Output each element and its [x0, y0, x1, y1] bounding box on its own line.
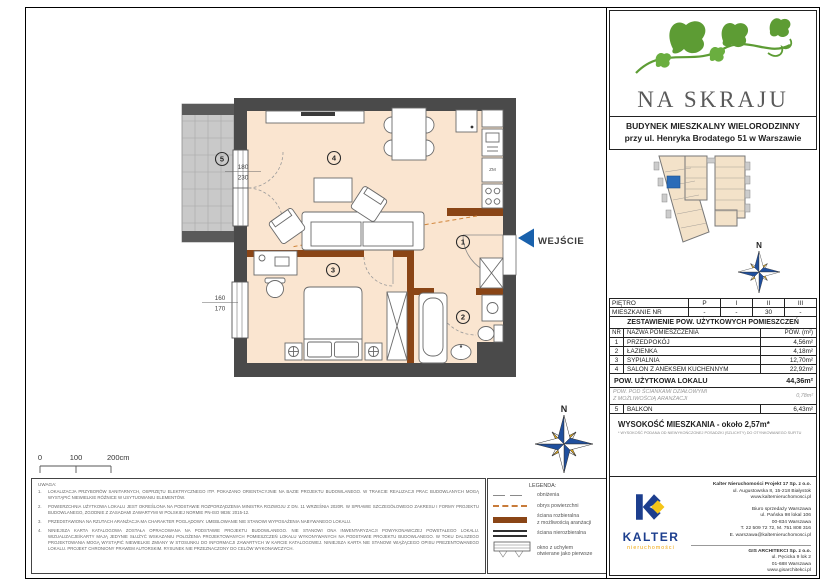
compass-icon: N — [535, 404, 593, 473]
svg-text:200cm: 200cm — [107, 453, 130, 462]
svg-text:0: 0 — [38, 453, 42, 462]
stove-icon — [482, 184, 503, 208]
svg-text:N: N — [561, 404, 568, 414]
floor-plan: ZM — [29, 10, 607, 476]
bedroom-wardrobe — [387, 292, 407, 360]
note-item: 2.POWIERZCHNIA UŻYTKOWA LOKALU JEST OKRE… — [38, 504, 479, 516]
fridge-icon — [482, 129, 503, 156]
bedroom-window — [232, 282, 248, 338]
area-row: 3 SYPIALNIA 12,70m² — [610, 356, 816, 365]
legend-title: LEGENDA: — [529, 483, 601, 489]
window-swatch-icon — [493, 541, 533, 561]
nightstand — [365, 343, 382, 360]
bathtub — [419, 293, 447, 363]
development-name: NA SKRAJU — [610, 87, 816, 113]
building-right-wing — [715, 156, 745, 218]
scale-bar: 0 100 200cm — [38, 453, 130, 473]
notes-title: UWAGA: — [38, 482, 479, 487]
svg-text:2: 2 — [461, 313, 465, 322]
height-footnote: * WYSOKOŚĆ PODANA OD NIEWYKOŃCZONEJ POSA… — [618, 431, 816, 435]
entrance-arrow-icon — [518, 229, 534, 248]
notes-box: UWAGA: 1.LOKALIZACJA PRZYBORÓW SANITARNY… — [31, 478, 486, 574]
demountable-wall-swatch-icon — [493, 517, 533, 523]
legend-box: LEGENDA: obniżenia obrys powierzchni ści… — [487, 478, 607, 574]
height-box: WYSOKOŚĆ MIESZKANIA - około 2,57m* * WYS… — [609, 413, 817, 477]
nightstand — [285, 343, 302, 360]
legend-item: ściana nierozbieralna — [493, 530, 601, 537]
kalter-logo: KALTER nieruchomości — [618, 491, 684, 551]
tv-icon — [301, 112, 335, 116]
note-item: 3.PRZEDSTAWIONA NA RZUTACH ARANŻACJA MA … — [38, 519, 479, 525]
area-row: 2 ŁAZIENKA 4,18m² — [610, 347, 816, 356]
svg-text:5: 5 — [220, 155, 224, 164]
svg-text:100: 100 — [70, 453, 83, 462]
legend-item: obniżenia — [493, 492, 601, 499]
legend-item: obrys powierzchni — [493, 503, 601, 510]
sink — [451, 345, 471, 360]
kalter-brand: KALTER — [618, 530, 684, 544]
area-row: 1 PRZEDPOKÓJ 4,56m² — [610, 338, 816, 347]
contact-divider — [691, 545, 811, 546]
floor-table: PIĘTRO P I II III MIESZKANIE NR - - 30 - — [609, 298, 817, 317]
note-item: 1.LOKALIZACJA PRZYBORÓW SANITARNYCH, OSP… — [38, 489, 479, 501]
svg-text:170: 170 — [215, 306, 226, 313]
highlighted-unit — [667, 176, 680, 188]
sofa — [302, 212, 424, 250]
logo-box: NA SKRAJU — [609, 10, 817, 117]
lowered-ceiling-swatch-icon — [493, 495, 533, 496]
hall-wardrobe — [480, 258, 503, 288]
site-plan-map: N — [609, 150, 815, 298]
company-box: KALTER nieruchomości Kalter Nieruchomośc… — [609, 476, 817, 576]
compass-icon: N — [738, 241, 780, 293]
svg-text:N: N — [756, 241, 762, 250]
developer-contact: Kalter Nieruchomości Projekt 17 Sp. z o.… — [681, 482, 811, 502]
kitchen-zm-label: ZM — [489, 167, 496, 172]
kalter-brand-sub: nieruchomości — [618, 545, 684, 551]
kalter-logo-icon — [633, 491, 669, 523]
desk — [254, 251, 297, 275]
title-block-panel: NA SKRAJU BUDYNEK MIESZKALNY WIELORODZIN… — [606, 8, 819, 578]
fixed-wall-swatch-icon — [493, 530, 533, 537]
drawing-frame: ZM — [25, 7, 820, 579]
bed — [304, 287, 362, 360]
building-right-foot — [715, 210, 737, 226]
svg-text:3: 3 — [331, 266, 335, 275]
entrance-opening — [503, 235, 516, 275]
entrance-label: WEJŚCIE — [538, 235, 584, 247]
area-outline-swatch-icon — [493, 505, 533, 507]
partition-area-row: POW. POD ŚCIANKAMI DZIAŁOWYMI Z MOŻLIWOŚ… — [610, 388, 816, 405]
dining-table — [392, 108, 426, 160]
entrance-marker: WEJŚCIE — [518, 229, 584, 248]
area-table-header: NR NAZWA POMIESZCZENIA POW. (m²) — [610, 329, 816, 338]
desk-chair — [265, 278, 285, 298]
toilet — [478, 325, 503, 342]
svg-text:180: 180 — [238, 164, 249, 171]
floor-row: PIĘTRO P I II III — [610, 299, 817, 308]
building-subtitle-box: BUDYNEK MIESZKALNY WIELORODZINNY przy ul… — [609, 116, 817, 150]
svg-text:1: 1 — [461, 238, 465, 247]
architect-contact: GIS ARCHITEKCI Sp. z o.o. ul. Pęcicka 9 … — [681, 549, 811, 575]
building-address: przy ul. Henryka Brodatego 51 w Warszawi… — [610, 133, 816, 143]
company-contacts: Kalter Nieruchomości Projekt 17 Sp. z o.… — [681, 482, 811, 580]
svg-text:230: 230 — [238, 175, 249, 182]
legend-item: okno z uchyłem otwierane jako pierwsze — [493, 541, 601, 561]
ivy-icon — [618, 15, 808, 81]
site-plan-box: N — [609, 150, 817, 298]
area-row: 4 SALON Z ANEKSEM KUCHENNYM 22,92m² — [610, 365, 816, 374]
washing-machine — [482, 295, 503, 321]
building-type: BUDYNEK MIESZKALNY WIELORODZINNY — [610, 121, 816, 131]
catalog-sheet: ZM — [0, 0, 830, 587]
svg-text:160: 160 — [215, 295, 226, 302]
total-area-row: POW. UŻYTKOWA LOKALU 44,36m² — [610, 374, 816, 388]
sales-office-contact: Biuro sprzedaży Warszawa ul. Pańska 98 l… — [681, 507, 811, 540]
legend-item: ściana rozbieralna z możliwością aranżac… — [493, 513, 601, 526]
area-table: NR NAZWA POMIESZCZENIA POW. (m²) 1 PRZED… — [609, 328, 817, 414]
apartment-height: WYSOKOŚĆ MIESZKANIA - około 2,57m* — [618, 420, 816, 429]
coffee-table — [314, 178, 352, 202]
note-item: 4.NINIEJSZA KARTA KATALOGOWA ZOSTAŁA OPR… — [38, 528, 479, 552]
balcony — [182, 104, 234, 242]
